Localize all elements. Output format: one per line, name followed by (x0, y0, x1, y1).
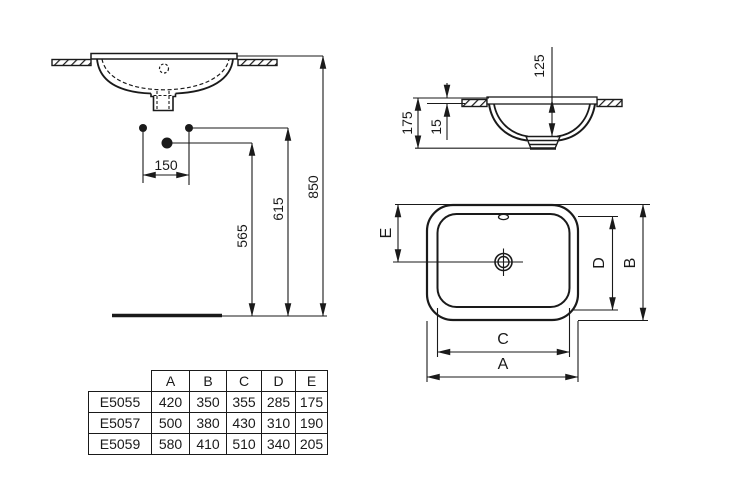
value-cell: 510 (227, 434, 262, 455)
dim-label-150: 150 (154, 157, 178, 173)
col-header-a: A (152, 371, 190, 392)
dim-label-b: B (622, 258, 639, 269)
value-cell: 310 (262, 413, 296, 434)
model-cell: E5059 (89, 434, 152, 455)
value-cell: 500 (152, 413, 190, 434)
value-cell: 350 (190, 392, 227, 413)
dim-label-e: E (378, 228, 395, 239)
dim-label-15: 15 (428, 119, 444, 135)
bowl-hidden-inner (102, 59, 229, 90)
drain-stub-outline (151, 94, 176, 111)
value-cell: 175 (296, 392, 328, 413)
dimension-table: A B C D E E5055 420 350 355 285 175 E505… (88, 370, 328, 455)
overflow-hole-hidden (160, 64, 169, 73)
drain-flange-side-left (526, 137, 531, 149)
col-header-b: B (190, 371, 227, 392)
value-cell: 340 (262, 434, 296, 455)
value-cell: 430 (227, 413, 262, 434)
countertop-right-section-side (597, 100, 622, 107)
value-cell: 380 (190, 413, 227, 434)
table-header-row: A B C D E (89, 371, 328, 392)
fixing-dot-left (139, 124, 147, 132)
countertop-left-section-side (462, 100, 487, 107)
bowl-wall-right-inner (557, 104, 590, 137)
basin-rim-side (487, 97, 597, 104)
dim-label-125: 125 (531, 54, 547, 78)
value-cell: 190 (296, 413, 328, 434)
col-header-e: E (296, 371, 328, 392)
value-cell: 355 (227, 392, 262, 413)
value-cell: 420 (152, 392, 190, 413)
overflow-hole-plan (499, 214, 509, 219)
table-row: E5059 580 410 510 340 205 (89, 434, 328, 455)
front-elevation-view: 150 565 615 850 (52, 54, 327, 317)
dim-label-c: C (497, 331, 509, 348)
value-cell: 580 (152, 434, 190, 455)
countertop-left-section (52, 60, 91, 66)
side-section-view: 175 15 125 (399, 47, 622, 149)
col-header-d: D (262, 371, 296, 392)
bowl-wall-left-inner (494, 104, 528, 137)
technical-drawing-page: 150 565 615 850 175 (0, 0, 737, 500)
table-corner-blank (89, 371, 152, 392)
model-cell: E5057 (89, 413, 152, 434)
countertop-right-section (238, 60, 277, 66)
plan-view: E D B C A (378, 205, 650, 383)
value-cell: 205 (296, 434, 328, 455)
basin-rim-front (91, 54, 237, 60)
dim-label-615: 615 (270, 197, 286, 221)
drain-flange-side-right (555, 137, 560, 149)
table-row: E5057 500 380 430 310 190 (89, 413, 328, 434)
dim-label-a: A (498, 356, 509, 373)
dim-label-175: 175 (399, 111, 415, 135)
dim-label-850: 850 (305, 175, 321, 199)
value-cell: 285 (262, 392, 296, 413)
dim-label-565: 565 (234, 224, 250, 248)
table-row: E5055 420 350 355 285 175 (89, 392, 328, 413)
col-header-c: C (227, 371, 262, 392)
value-cell: 410 (190, 434, 227, 455)
dim-label-d: D (591, 257, 608, 269)
model-cell: E5055 (89, 392, 152, 413)
